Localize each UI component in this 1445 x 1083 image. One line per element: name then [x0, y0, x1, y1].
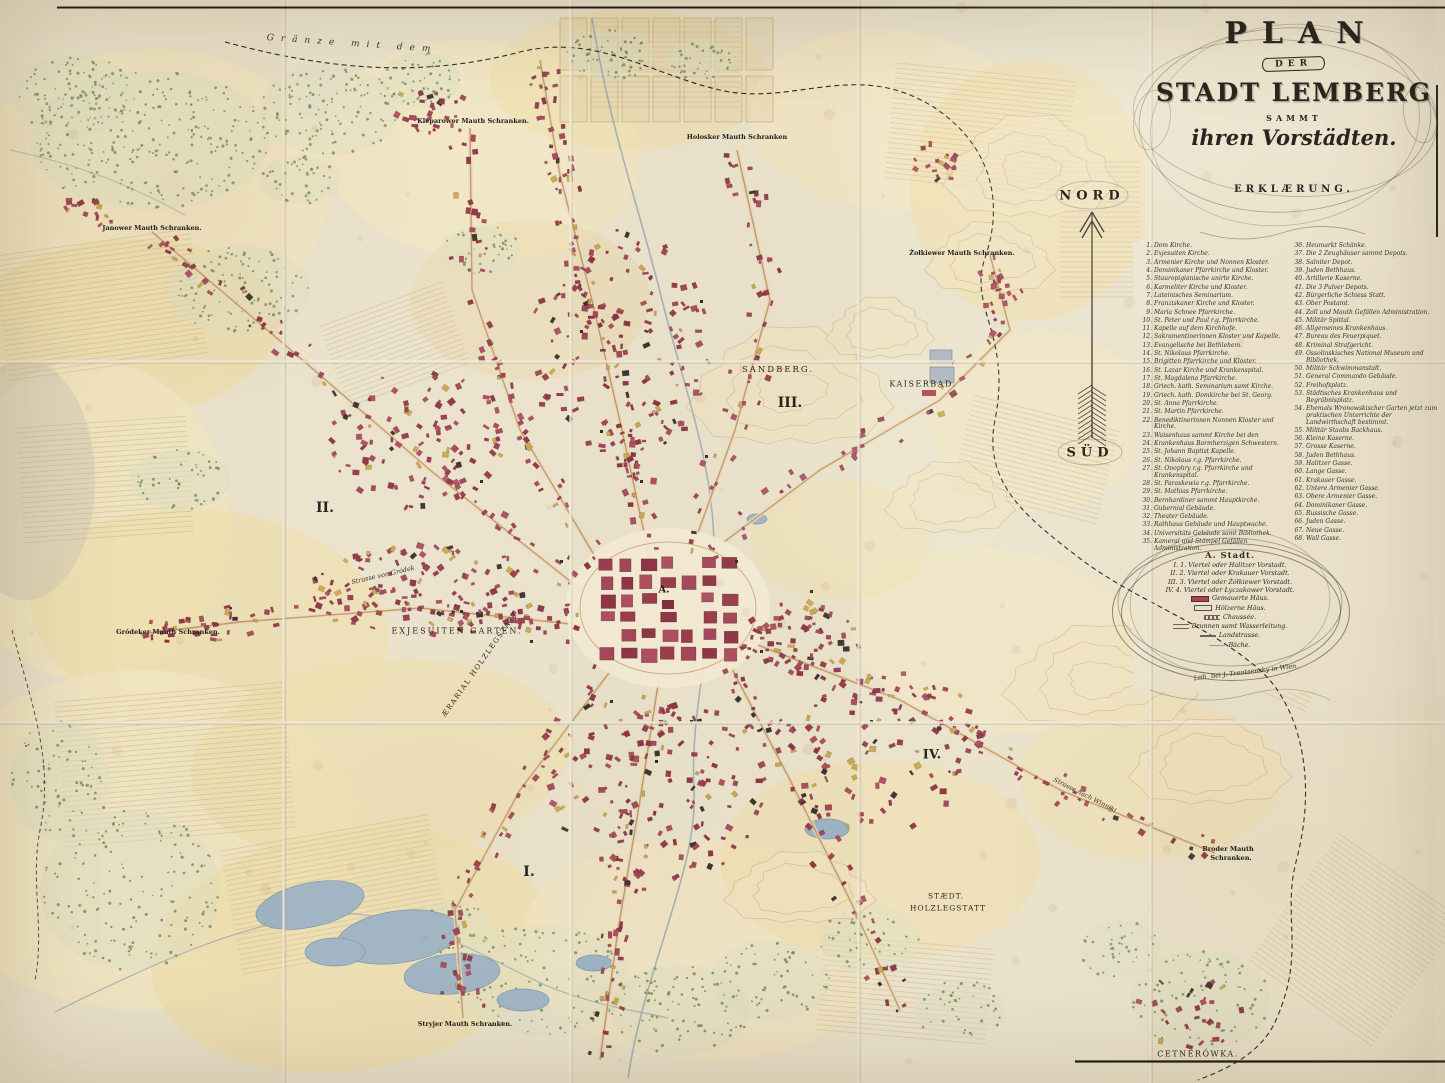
legend-entry-text: Exjesuiten Kirche. [1154, 251, 1290, 258]
key-cartouche: A. Stadt. I. 1. Viertel oder Halitzer Vo… [1122, 551, 1338, 650]
legend-entry: 36.Heumarkt Schänke. [1292, 243, 1443, 250]
legend-entry: 42.Bürgerliche Schiess Statt. [1292, 293, 1443, 300]
legend-entry-number: 5. [1140, 276, 1154, 283]
legend-entry-text: Armenier Kirche und Nonnen Kloster. [1154, 260, 1290, 267]
legend-entry-number: 32. [1140, 514, 1154, 521]
legend-entry: 68.Wall Gasse. [1292, 536, 1443, 543]
legend-entry-text: Ossolinskisches National Museum und Bibl… [1306, 351, 1443, 364]
key-quarter-list: I. 1. Viertel oder Halitzer Vorstadt.II.… [1122, 561, 1338, 594]
legend-entry-text: Heumarkt Schänke. [1306, 243, 1443, 250]
legend-entry: 17.St. Magdalena Pfarrkirche. [1140, 376, 1290, 383]
key-symbol-list: Gemauerte Häus.Hölzerne Häus.Chaussée.Br… [1122, 594, 1338, 650]
legend-entry-number: 25. [1140, 449, 1154, 456]
key-quarter-line: III. 3. Viertel oder Żółkiewer Vorstadt. [1122, 578, 1338, 586]
legend-entry-text: Juden Gasse. [1306, 519, 1443, 526]
key-symbol-row: Hölzerne Häus. [1122, 604, 1338, 613]
legend-entry: 27.St. Onophry r.g. Pfarrkirche und Kran… [1140, 466, 1290, 479]
key-symbol-row: Bäche. [1122, 641, 1338, 650]
legend-entry: 20.St. Anna Pfarrkirche. [1140, 401, 1290, 408]
legend-entry: 46.Allgemeines Krankenhaus. [1292, 326, 1443, 333]
legend-entry-text: Gubernial Gebäude. [1154, 506, 1290, 513]
legend-entry-number: 17. [1140, 376, 1154, 383]
legend-entry-number: 23. [1140, 433, 1154, 440]
legend-entry: 61.Krakauer Gasse. [1292, 478, 1443, 485]
legend-entry-number: 53. [1292, 391, 1306, 404]
legend-entry-text: Militär Staabs Backhaus. [1306, 428, 1443, 435]
title-word-vorstaedten: ihren Vorstädten. [1148, 125, 1440, 150]
legend-entry: 11.Kapelle auf dem Kirchhofe. [1140, 326, 1290, 333]
brunnen-swatch-icon [1173, 624, 1189, 629]
legend-entry-text: Lange Gasse. [1306, 469, 1443, 476]
legend-entry: 9.Maria Schnee Pfarrkirche. [1140, 310, 1290, 317]
legend-entry-text: St. Nikolaus Pfarrkirche. [1154, 351, 1290, 358]
legend-entry: 21.St. Martin Pfarrkirche. [1140, 409, 1290, 416]
legend-entry-number: 18. [1140, 384, 1154, 391]
legend-entry: 24.Krankenhaus Barmherzigen Schwestern. [1140, 441, 1290, 448]
legend-entry: 66.Juden Gasse. [1292, 519, 1443, 526]
legend-entry: 6.Karmeliter Kirche und Kloster. [1140, 285, 1290, 292]
legend-entry-number: 9. [1140, 310, 1154, 317]
legend-entry-number: 55. [1292, 428, 1306, 435]
legend-entry-text: Universitäts Gebäude samt Bibliothek. [1154, 531, 1290, 538]
legend-entry-text: St. Anna Pfarrkirche. [1154, 401, 1290, 408]
legend-entry-text: Krankenhaus Barmherzigen Schwestern. [1154, 441, 1290, 448]
legend-entry-number: 28. [1140, 481, 1154, 488]
legend-entry-number: 33. [1140, 522, 1154, 529]
legend-entry-text: Kriminal Strafgericht. [1306, 343, 1443, 350]
legend-entry: 38.Salniter Depot. [1292, 260, 1443, 267]
legend-entry-number: 62. [1292, 486, 1306, 493]
legend-entry-number: 30. [1140, 498, 1154, 505]
legend-entry: 49.Ossolinskisches National Museum und B… [1292, 351, 1443, 364]
legend-entry-number: 39. [1292, 268, 1306, 275]
legend-entry-number: 54. [1292, 406, 1306, 426]
key-city-line: A. Stadt. [1122, 551, 1338, 561]
legend-entry-number: 24. [1140, 441, 1154, 448]
legend-entry-text: Die 3 Pulver Depots. [1306, 285, 1443, 292]
legend-entry-text: Städtisches Krankenhaus und Begräbnispla… [1306, 391, 1443, 404]
legend-entry-text: St. Onophry r.g. Pfarrkirche und Kranken… [1154, 466, 1290, 479]
legend-entry: 25.St. Johann Baptist Kapelle. [1140, 449, 1290, 456]
legend-entry-number: 63. [1292, 494, 1306, 501]
legend-entry-text: Salniter Depot. [1306, 260, 1443, 267]
legend-entry-text: Franziskaner Kirche und Kloster. [1154, 301, 1290, 308]
legend-entry-text: St. Peter und Paul r.g. Pfarrkirche. [1154, 318, 1290, 325]
legend-entry-text: Maria Schnee Pfarrkirche. [1154, 310, 1290, 317]
title-word-stadt-lemberg: STADT LEMBERG [1148, 78, 1440, 107]
legend-entry: 65.Russische Gasse. [1292, 511, 1443, 518]
legend-entry-number: 58. [1292, 453, 1306, 460]
legend-entry: 62.Untere Armenier Gasse. [1292, 486, 1443, 493]
legend-entry-number: 27. [1140, 466, 1154, 479]
legend-entry: 7.Lateinisches Seminarium. [1140, 293, 1290, 300]
legend-entry-text: Untere Armenier Gasse. [1306, 486, 1443, 493]
legend-entry-text: Dom Kirche. [1154, 243, 1290, 250]
legend-entry-number: 44. [1292, 310, 1306, 317]
legend-entry-number: 42. [1292, 293, 1306, 300]
legend-entry-text: Juden Bethhaus. [1306, 453, 1443, 460]
title-cartouche: PLAN DER STADT LEMBERG SAMMT ihren Vorst… [1148, 16, 1440, 195]
legend-entry-number: 47. [1292, 334, 1306, 341]
legend-entry-text: Krakauer Gasse. [1306, 478, 1443, 485]
legend-entry-number: 12. [1140, 334, 1154, 341]
legend-entry: 31.Gubernial Gebäude. [1140, 506, 1290, 513]
legend-entry-text: Evangelische bei Bethlehem. [1154, 343, 1290, 350]
legend-entry-text: St. Martin Pfarrkirche. [1154, 409, 1290, 416]
legend-entry: 47.Bureau des Feuerpiquet. [1292, 334, 1443, 341]
legend-entry-number: 20. [1140, 401, 1154, 408]
key-symbol-row: Gemauerte Häus. [1122, 594, 1338, 603]
legend-entry-text: Lateinisches Seminarium. [1154, 293, 1290, 300]
legend-entry-number: 36. [1292, 243, 1306, 250]
key-symbol-label: Hölzerne Häus. [1215, 604, 1265, 613]
legend-entry-number: 22. [1140, 418, 1154, 431]
legend-entry: 64.Dominikaner Gasse. [1292, 503, 1443, 510]
legend-entry: 56.Kleine Kaserne. [1292, 436, 1443, 443]
legend-entry: 34.Universitäts Gebäude samt Bibliothek. [1140, 531, 1290, 538]
legend-entry-number: 43. [1292, 301, 1306, 308]
legend-entry: 53.Städtisches Krankenhaus und Begräbnis… [1292, 391, 1443, 404]
compass-south-label: SÜD [1067, 446, 1114, 461]
legend-entry-number: 52. [1292, 383, 1306, 390]
legend-entry-text: Stauropigianische unirte Kirche. [1154, 276, 1290, 283]
legend-entry-text: Kapelle auf dem Kirchhofe. [1154, 326, 1290, 333]
legend-entry-number: 4. [1140, 268, 1154, 275]
legend-entry-number: 68. [1292, 536, 1306, 543]
legend-entry-text: Rathhaus Gebäude und Hauptwache. [1154, 522, 1290, 529]
legend-entry-number: 6. [1140, 285, 1154, 292]
legend-entry-number: 2. [1140, 251, 1154, 258]
key-quarter-line: II. 2. Viertel oder Krakauer Vorstadt. [1122, 569, 1338, 577]
legend-entry: 23.Waisenhaus sammt Kirche bei den [1140, 433, 1290, 440]
legend-entry-text: Karmeliter Kirche und Kloster. [1154, 285, 1290, 292]
legend-entry: 15.Brigitten Pfarrkirche und Kloster. [1140, 359, 1290, 366]
title-word-sammt: SAMMT [1148, 113, 1440, 123]
legend-entry-text: General Commando Gebäude. [1306, 374, 1443, 381]
legend-entry-text: Allgemeines Krankenhaus. [1306, 326, 1443, 333]
legend-entry-number: 48. [1292, 343, 1306, 350]
legend-entry-number: 1. [1140, 243, 1154, 250]
legend-entry: 13.Evangelische bei Bethlehem. [1140, 343, 1290, 350]
legend-entry: 3.Armenier Kirche und Nonnen Kloster. [1140, 260, 1290, 267]
legend-entry-number: 51. [1292, 374, 1306, 381]
key-symbol-label: Landstrasse. [1219, 631, 1260, 640]
key-symbol-label: Gemauerte Häus. [1212, 594, 1269, 603]
legend-entry-number: 46. [1292, 326, 1306, 333]
legend-entry-number: 26. [1140, 458, 1154, 465]
legend-entry: 37.Die 2 Zeughäuser sammt Depots. [1292, 251, 1443, 258]
title-word-plan: PLAN [1224, 16, 1378, 51]
legend-entry-text: St. Lazar Kirche und Krankenspital. [1154, 368, 1290, 375]
legend-entry: 58.Juden Bethhaus. [1292, 453, 1443, 460]
key-symbol-label: Bäche. [1228, 641, 1250, 650]
legend-entry-text: Militär Schwimmanstalt. [1306, 366, 1443, 373]
legend-entry-number: 21. [1140, 409, 1154, 416]
legend-entry: 67.Neue Gasse. [1292, 528, 1443, 535]
legend-entry: 16.St. Lazar Kirche und Krankenspital. [1140, 368, 1290, 375]
key-symbol-label: Brunnen samt Wasserleitung. [1192, 622, 1288, 631]
legend-entry-text: Die 2 Zeughäuser sammt Depots. [1306, 251, 1443, 258]
legend-entry-text: Brigitten Pfarrkirche und Kloster. [1154, 359, 1290, 366]
legend-entry-number: 61. [1292, 478, 1306, 485]
legend-entry: 26.St. Nikolaus r.g. Pfarrkirche. [1140, 458, 1290, 465]
legend-entry: 33.Rathhaus Gebäude und Hauptwache. [1140, 522, 1290, 529]
legend-entry: 55.Militär Staabs Backhaus. [1292, 428, 1443, 435]
legend-entry-text: St. Nikolaus r.g. Pfarrkirche. [1154, 458, 1290, 465]
key-symbol-label: Chaussée. [1223, 613, 1256, 622]
legend-entry-number: 13. [1140, 343, 1154, 350]
legend-entry-number: 60. [1292, 469, 1306, 476]
legend-entry-number: 67. [1292, 528, 1306, 535]
legend-column-right: 36.Heumarkt Schänke.37.Die 2 Zeughäuser … [1292, 243, 1443, 544]
legend-entry: 63.Obere Armenier Gasse. [1292, 494, 1443, 501]
legend-entry: 4.Dominikaner Pfarrkirche und Kloster. [1140, 268, 1290, 275]
legend-entry-number: 34. [1140, 531, 1154, 538]
wood-swatch-icon [1194, 605, 1212, 611]
legend-entry: 22.Benediktinerinnen Nonnen Kloster und … [1140, 418, 1290, 431]
chaussee-swatch-icon [1204, 615, 1220, 620]
legend-entry: 12.Sakramentinerinnen Kloster und Kapell… [1140, 334, 1290, 341]
legend-entry-number: 7. [1140, 293, 1154, 300]
legend-entry-text: Waisenhaus sammt Kirche bei den [1154, 433, 1290, 440]
legend-entry-number: 45. [1292, 318, 1306, 325]
legend-entry-text: Ehemals Wronowskischer Garten jetzt zum … [1306, 406, 1443, 426]
legend-entry-text: Artillerie Kaserne. [1306, 276, 1443, 283]
legend-entry-text: Bernhardiner sammt Hauptkirche. [1154, 498, 1290, 505]
legend-entry-text: Russische Gasse. [1306, 511, 1443, 518]
legend-entry-text: Sakramentinerinnen Kloster und Kapelle. [1154, 334, 1290, 341]
legend-entry: 60.Lange Gasse. [1292, 469, 1443, 476]
key-quarter-line: IV. 4. Viertel oder Łyczakower Vorstadt. [1122, 586, 1338, 594]
legend-heading: ERKLÆRUNG. [1148, 184, 1440, 195]
legend-entry-text: Bürgerliche Schiess Statt. [1306, 293, 1443, 300]
key-symbol-row: Chaussée. [1122, 613, 1338, 622]
masonry-swatch-icon [1191, 596, 1209, 602]
legend-column-left: 1.Dom Kirche.2.Exjesuiten Kirche.3.Armen… [1140, 243, 1290, 554]
legend-entry-text: Juden Bethhaus. [1306, 268, 1443, 275]
land-swatch-icon [1200, 635, 1216, 636]
legend-entry: 18.Griech. kath. Seminarium samt Kirche. [1140, 384, 1290, 391]
legend-entry-text: Bureau des Feuerpiquet. [1306, 334, 1443, 341]
legend-entry: 19.Griech. kath. Domkirche bei St. Georg… [1140, 393, 1290, 400]
legend-entry: 44.Zoll und Mauth Gefällen Administratio… [1292, 310, 1443, 317]
map-sheet: PLAN DER STADT LEMBERG SAMMT ihren Vorst… [0, 0, 1445, 1083]
legend-entry-text: Grosse Kaserne. [1306, 444, 1443, 451]
legend-entry: 29.St. Mathias Pfarrkirche. [1140, 489, 1290, 496]
legend-entry-number: 64. [1292, 503, 1306, 510]
legend-entry-text: Dominikaner Pfarrkirche und Kloster. [1154, 268, 1290, 275]
legend-entry-text: Halitzer Gasse. [1306, 461, 1443, 468]
compass-north-label: NORD [1059, 189, 1124, 204]
legend-entry: 59.Halitzer Gasse. [1292, 461, 1443, 468]
legend-entry-text: St. Mathias Pfarrkirche. [1154, 489, 1290, 496]
legend-entry-number: 29. [1140, 489, 1154, 496]
legend-entry-number: 38. [1292, 260, 1306, 267]
legend-entry-text: Neue Gasse. [1306, 528, 1443, 535]
legend-entry-text: Militär Spittal. [1306, 318, 1443, 325]
legend-entry: 50.Militär Schwimmanstalt. [1292, 366, 1443, 373]
legend-entry-number: 41. [1292, 285, 1306, 292]
legend-entry: 10.St. Peter und Paul r.g. Pfarrkirche. [1140, 318, 1290, 325]
legend-entry-number: 31. [1140, 506, 1154, 513]
legend-entry-text: Ober Postamt. [1306, 301, 1443, 308]
legend-entry-text: Wall Gasse. [1306, 536, 1443, 543]
legend-entry-text: St. Johann Baptist Kapelle. [1154, 449, 1290, 456]
legend-entry-number: 10. [1140, 318, 1154, 325]
legend-entry: 30.Bernhardiner sammt Hauptkirche. [1140, 498, 1290, 505]
legend-entry-number: 40. [1292, 276, 1306, 283]
legend-entry-number: 65. [1292, 511, 1306, 518]
legend-entry-number: 59. [1292, 461, 1306, 468]
key-quarter-line: I. 1. Viertel oder Halitzer Vorstadt. [1122, 561, 1338, 569]
legend-entry: 1.Dom Kirche. [1140, 243, 1290, 250]
legend-entry-text: Zoll und Mauth Gefällen Administration. [1306, 310, 1443, 317]
legend-entry: 57.Grosse Kaserne. [1292, 444, 1443, 451]
legend-entry-text: Dominikaner Gasse. [1306, 503, 1443, 510]
legend-entry: 45.Militär Spittal. [1292, 318, 1443, 325]
legend-entry: 32.Theater Gebäude. [1140, 514, 1290, 521]
legend-entry-text: Theater Gebäude. [1154, 514, 1290, 521]
key-symbol-row: Landstrasse. [1122, 631, 1338, 640]
legend-entry-number: 14. [1140, 351, 1154, 358]
legend-entry-number: 57. [1292, 444, 1306, 451]
legend-entry-number: 66. [1292, 519, 1306, 526]
legend-entry: 14.St. Nikolaus Pfarrkirche. [1140, 351, 1290, 358]
legend-entry-number: 49. [1292, 351, 1306, 364]
title-word-der: DER [1262, 56, 1326, 72]
legend-entry: 51.General Commando Gebäude. [1292, 374, 1443, 381]
map-title-plan: PLAN [1148, 16, 1440, 51]
legend-entry-text: Kleine Kaserne. [1306, 436, 1443, 443]
legend-entry-text: Griech. kath. Domkirche bei St. Georg. [1154, 393, 1290, 400]
legend-entry-text: Griech. kath. Seminarium samt Kirche. [1154, 384, 1290, 391]
legend-entry-number: 50. [1292, 366, 1306, 373]
baeche-swatch-icon [1209, 645, 1225, 646]
legend-entry-number: 3. [1140, 260, 1154, 267]
legend-entry-text: Freihofsplatz. [1306, 383, 1443, 390]
legend-entry: 28.St. Paraskewia r.g. Pfarrkirche. [1140, 481, 1290, 488]
legend-entry-text: Benediktinerinnen Nonnen Kloster und Kir… [1154, 418, 1290, 431]
legend-entry-number: 37. [1292, 251, 1306, 258]
legend-entry: 8.Franziskaner Kirche und Kloster. [1140, 301, 1290, 308]
legend-entry-number: 11. [1140, 326, 1154, 333]
legend-entry-number: 56. [1292, 436, 1306, 443]
legend-entry-number: 16. [1140, 368, 1154, 375]
legend-entry-text: St. Paraskewia r.g. Pfarrkirche. [1154, 481, 1290, 488]
legend-entry: 40.Artillerie Kaserne. [1292, 276, 1443, 283]
legend-entry-text: Obere Armenier Gasse. [1306, 494, 1443, 501]
legend-entry: 48.Kriminal Strafgericht. [1292, 343, 1443, 350]
legend-entry-number: 19. [1140, 393, 1154, 400]
legend-entry: 2.Exjesuiten Kirche. [1140, 251, 1290, 258]
legend-entry: 39.Juden Bethhaus. [1292, 268, 1443, 275]
legend-entry-text: St. Magdalena Pfarrkirche. [1154, 376, 1290, 383]
legend-entry: 43.Ober Postamt. [1292, 301, 1443, 308]
legend-entry-number: 8. [1140, 301, 1154, 308]
key-symbol-row: Brunnen samt Wasserleitung. [1122, 622, 1338, 631]
legend-entry: 5.Stauropigianische unirte Kirche. [1140, 276, 1290, 283]
legend-entry-number: 15. [1140, 359, 1154, 366]
legend-entry: 52.Freihofsplatz. [1292, 383, 1443, 390]
legend-entry: 54.Ehemals Wronowskischer Garten jetzt z… [1292, 406, 1443, 426]
legend-entry: 41.Die 3 Pulver Depots. [1292, 285, 1443, 292]
